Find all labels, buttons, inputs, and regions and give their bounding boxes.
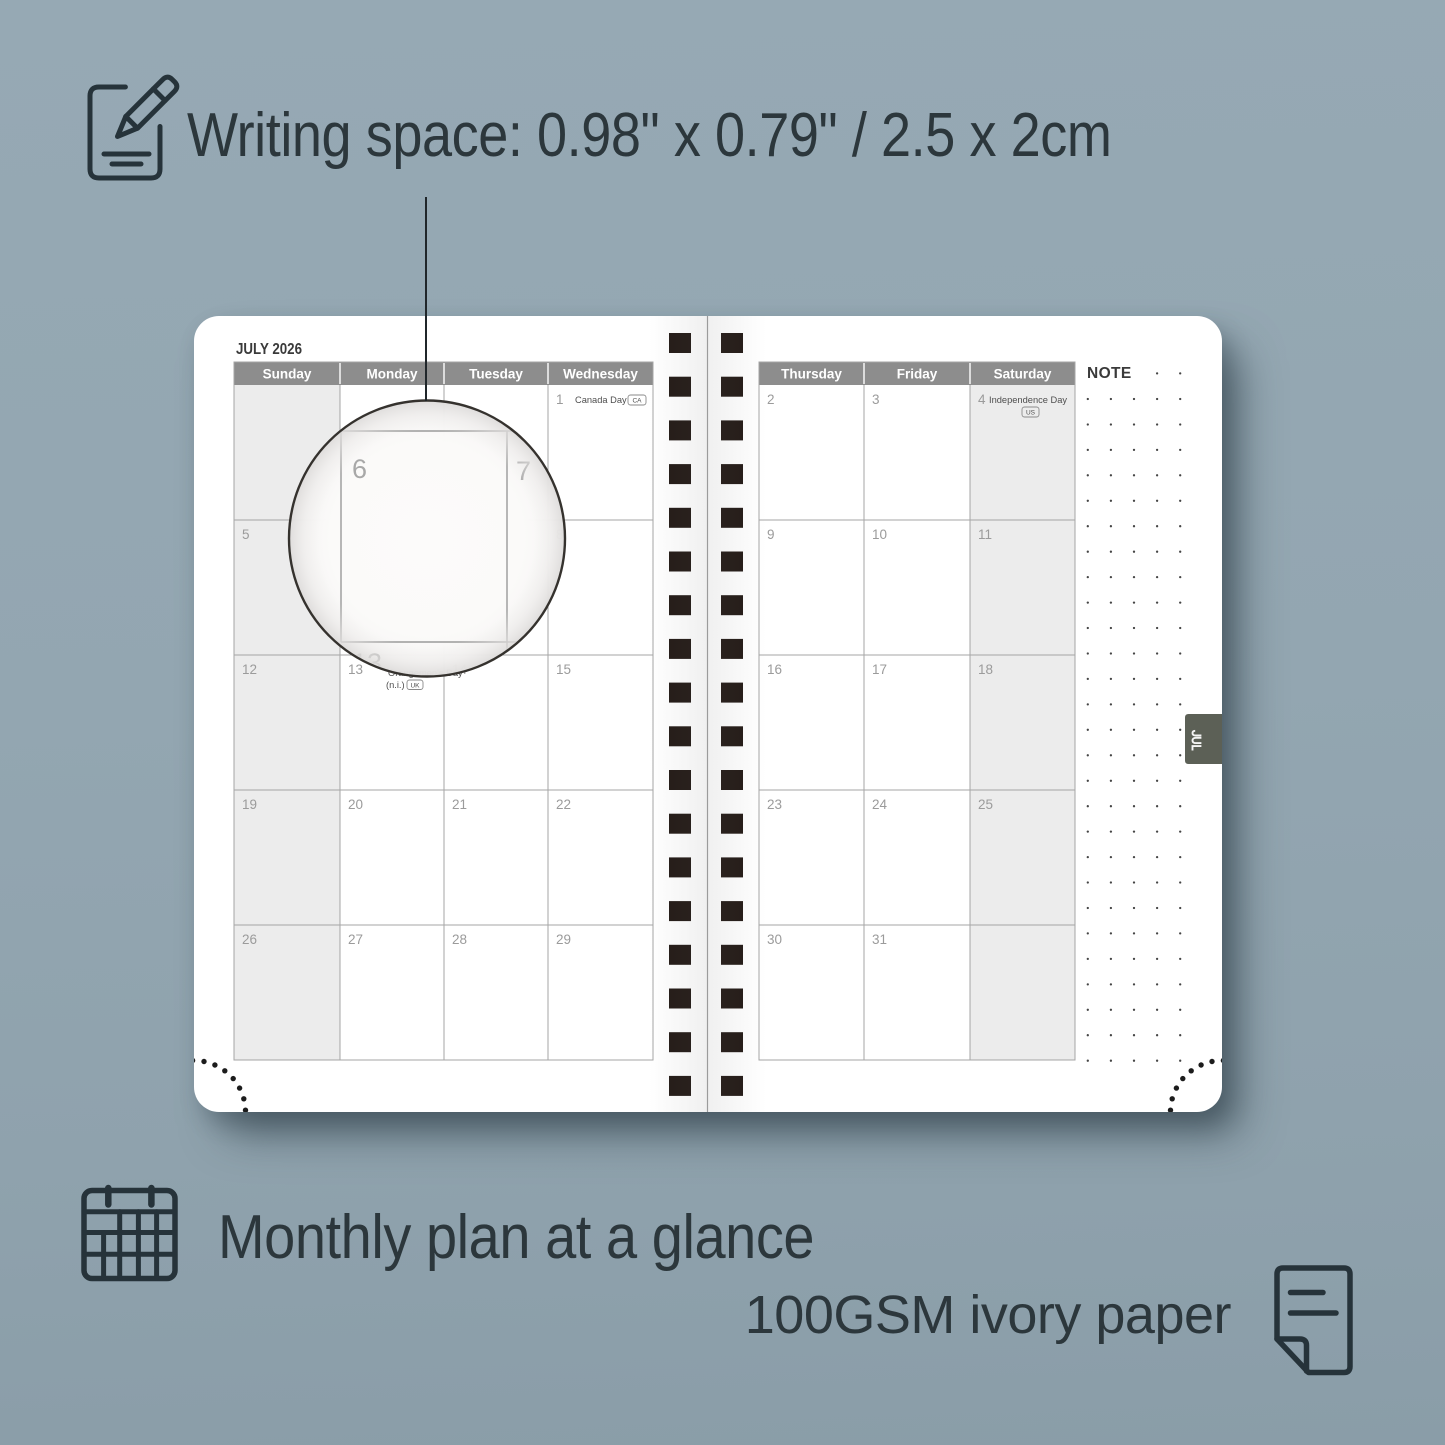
svg-text:Canada Day: Canada Day (575, 395, 627, 405)
svg-text:19: 19 (242, 797, 257, 812)
svg-text:Wednesday: Wednesday (563, 367, 638, 382)
svg-text:UK: UK (410, 683, 420, 690)
svg-text:(n.i.): (n.i.) (386, 680, 405, 690)
svg-text:NOTE: NOTE (1087, 365, 1132, 382)
svg-text:21: 21 (452, 797, 467, 812)
svg-text:Sunday: Sunday (263, 367, 312, 382)
svg-text:22: 22 (556, 797, 571, 812)
svg-text:31: 31 (872, 932, 887, 947)
svg-text:Monday: Monday (366, 367, 417, 382)
svg-text:Thursday: Thursday (781, 367, 842, 382)
svg-text:16: 16 (767, 662, 782, 677)
svg-text:15: 15 (556, 662, 571, 677)
svg-text:20: 20 (348, 797, 363, 812)
svg-text:US: US (1026, 410, 1036, 417)
svg-text:26: 26 (242, 932, 257, 947)
svg-text:Saturday: Saturday (994, 367, 1052, 382)
svg-text:23: 23 (767, 797, 782, 812)
svg-text:24: 24 (872, 797, 888, 812)
svg-text:JULY 2026: JULY 2026 (236, 341, 302, 358)
svg-text:10: 10 (872, 527, 887, 542)
svg-text:17: 17 (872, 662, 887, 677)
svg-text:2: 2 (767, 392, 775, 407)
svg-text:4: 4 (978, 392, 986, 407)
svg-text:12: 12 (242, 662, 257, 677)
svg-text:Independence Day: Independence Day (989, 395, 1067, 405)
svg-text:Tuesday: Tuesday (469, 367, 523, 382)
svg-text:9: 9 (767, 527, 775, 542)
svg-text:30: 30 (767, 932, 782, 947)
svg-text:Friday: Friday (897, 367, 938, 382)
svg-text:CA: CA (632, 398, 642, 405)
svg-text:18: 18 (978, 662, 993, 677)
svg-text:1: 1 (556, 392, 564, 407)
svg-text:25: 25 (978, 797, 993, 812)
svg-text:27: 27 (348, 932, 363, 947)
svg-text:13: 13 (348, 662, 363, 677)
svg-text:28: 28 (452, 932, 467, 947)
svg-text:11: 11 (978, 527, 992, 542)
svg-text:3: 3 (872, 392, 880, 407)
svg-text:29: 29 (556, 932, 571, 947)
svg-text:5: 5 (242, 527, 250, 542)
